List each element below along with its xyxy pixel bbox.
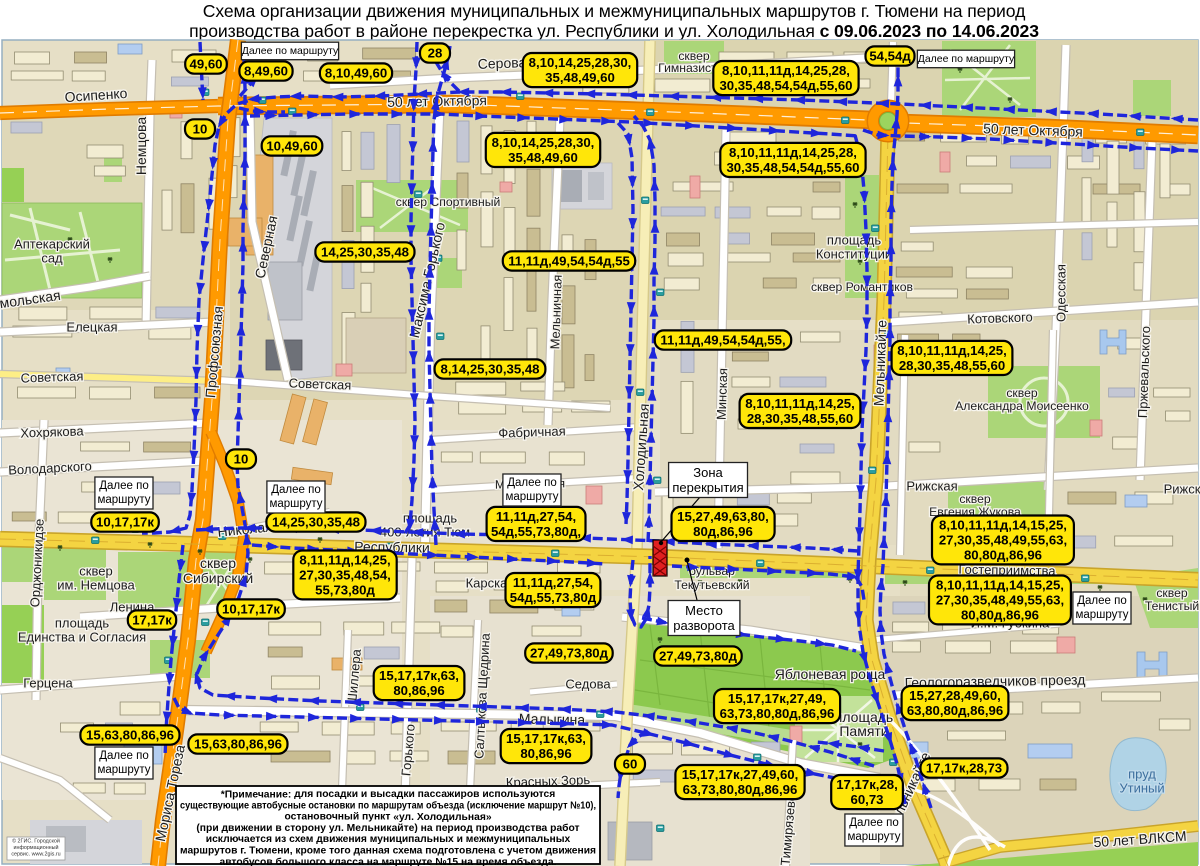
- svg-text:80,86,96: 80,86,96: [393, 683, 444, 698]
- svg-text:14,25,30,35,48: 14,25,30,35,48: [321, 245, 409, 260]
- svg-text:Пржевальского: Пржевальского: [1135, 326, 1153, 419]
- svg-text:Далее по: Далее по: [99, 480, 149, 492]
- svg-text:Рижск: Рижск: [1164, 482, 1200, 497]
- svg-text:11,11д,27,54,: 11,11д,27,54,: [496, 509, 576, 524]
- svg-text:Малыгина: Малыгина: [519, 710, 586, 727]
- svg-text:10,49,60: 10,49,60: [266, 139, 317, 154]
- svg-text:14,25,30,35,48: 14,25,30,35,48: [272, 515, 360, 530]
- svg-text:Одесская: Одесская: [1054, 264, 1069, 322]
- svg-text:8,10,11,11д,14,25,28,: 8,10,11,11д,14,25,28,: [722, 63, 850, 78]
- svg-text:Далее по: Далее по: [271, 484, 321, 496]
- svg-text:сад: сад: [41, 251, 63, 266]
- svg-text:Седова: Седова: [565, 677, 611, 692]
- svg-text:сквер: сквер: [79, 564, 112, 579]
- svg-text:15,17,17к,27,49,60,: 15,17,17к,27,49,60,: [682, 767, 799, 782]
- svg-text:10,17,17к: 10,17,17к: [222, 602, 280, 617]
- svg-text:55,73,80д: 55,73,80д: [315, 582, 375, 597]
- svg-text:перекрытия: перекрытия: [672, 480, 743, 495]
- svg-text:остановочный пункт «ул. Холоди: остановочный пункт «ул. Холодильная»: [284, 812, 491, 823]
- svg-text:63,80,80д,86,96: 63,80,80д,86,96: [907, 703, 1003, 718]
- svg-text:80,86,96: 80,86,96: [520, 746, 571, 761]
- svg-text:Зона: Зона: [693, 465, 723, 480]
- svg-text:маршруту: маршруту: [97, 764, 150, 776]
- svg-text:пруд: пруд: [1128, 767, 1156, 782]
- svg-text:Мельникайте: Мельникайте: [870, 319, 889, 406]
- svg-text:49,60: 49,60: [189, 57, 222, 72]
- svg-text:27,30,35,48,49,55,63,: 27,30,35,48,49,55,63,: [939, 533, 1067, 548]
- svg-text:разворота: разворота: [673, 618, 735, 633]
- svg-text:© 2ГИС. Городской: © 2ГИС. Городской: [12, 838, 60, 845]
- svg-text:Серова: Серова: [477, 54, 526, 72]
- svg-text:27,30,35,48,49,55,63,: 27,30,35,48,49,55,63,: [936, 593, 1064, 608]
- svg-text:Утиный: Утиный: [1119, 781, 1164, 796]
- svg-text:80,80д,86,96: 80,80д,86,96: [961, 607, 1039, 622]
- svg-text:54д,55,73,80д: 54д,55,73,80д: [510, 590, 597, 605]
- svg-text:8,14,25,30,35,48: 8,14,25,30,35,48: [441, 362, 540, 377]
- svg-text:27,30,35,48,54,: 27,30,35,48,54,: [299, 568, 391, 583]
- svg-text:Хохрякова: Хохрякова: [20, 423, 85, 440]
- svg-text:Тенистый: Тенистый: [1145, 599, 1199, 613]
- svg-text:11,11д,27,54,: 11,11д,27,54,: [513, 575, 593, 590]
- svg-text:28,30,35,48,55,60: 28,30,35,48,55,60: [747, 411, 853, 426]
- svg-text:8,10,11,11д,14,25,: 8,10,11,11д,14,25,: [897, 343, 1007, 358]
- svg-text:существующие автобусные остано: существующие автобусные остановки по мар…: [180, 799, 596, 811]
- svg-text:28,30,35,48,55,60: 28,30,35,48,55,60: [899, 358, 1005, 373]
- svg-text:Памяти: Памяти: [839, 723, 888, 739]
- svg-text:27,49,73,80д: 27,49,73,80д: [659, 649, 738, 664]
- svg-text:15,63,80,86,96: 15,63,80,86,96: [86, 728, 174, 743]
- svg-text:Далее по: Далее по: [507, 477, 557, 489]
- svg-text:Текутьевский: Текутьевский: [674, 578, 749, 592]
- svg-text:Советская: Советская: [288, 375, 351, 392]
- svg-text:30,35,48,54,54д,55,60: 30,35,48,54,54д,55,60: [726, 160, 859, 175]
- svg-text:10,17,17к: 10,17,17к: [96, 515, 154, 530]
- svg-text:63,73,80,80д,86,96: 63,73,80,80д,86,96: [683, 782, 798, 797]
- svg-text:Минская: Минская: [714, 368, 731, 421]
- svg-text:27,49,73,80д: 27,49,73,80д: [530, 646, 609, 661]
- svg-text:автобусов большого класса на м: автобусов большого класса на маршруте №1…: [220, 856, 557, 866]
- svg-text:Герцена: Герцена: [23, 676, 73, 691]
- svg-text:площадь: площадь: [55, 616, 110, 631]
- svg-text:площадь: площадь: [827, 233, 882, 248]
- svg-text:35,48,49,60: 35,48,49,60: [508, 150, 578, 165]
- svg-text:30,35,48,54,54д,55,60: 30,35,48,54,54д,55,60: [719, 78, 852, 93]
- svg-text:Далее по: Далее по: [99, 750, 149, 762]
- svg-text:11,11д,49,54,54д,55,: 11,11д,49,54,54д,55,: [660, 333, 785, 348]
- svg-text:8,11,11д,14,25,: 8,11,11д,14,25,: [299, 553, 390, 568]
- svg-text:15,17,17к,27,49,: 15,17,17к,27,49,: [728, 691, 826, 706]
- svg-text:8,10,11,11д,14,25,28,: 8,10,11,11д,14,25,28,: [729, 145, 857, 160]
- svg-text:Конституции: Конституции: [816, 247, 892, 262]
- svg-text:Далее по маршруту: Далее по маршруту: [242, 45, 339, 57]
- svg-text:им. Немцова: им. Немцова: [57, 578, 135, 593]
- svg-text:*Примечание: для посадки и выс: *Примечание: для посадки и высадки пасса…: [221, 789, 556, 800]
- svg-text:35,48,49,60: 35,48,49,60: [545, 70, 615, 85]
- svg-text:8,49,60: 8,49,60: [244, 64, 288, 79]
- svg-text:15,27,49,63,80,: 15,27,49,63,80,: [677, 509, 769, 524]
- svg-text:Александра Моисеенко: Александра Моисеенко: [955, 399, 1089, 413]
- svg-text:60,73: 60,73: [850, 792, 883, 807]
- svg-text:Мельничная: Мельничная: [547, 274, 565, 349]
- svg-text:Далее по: Далее по: [849, 817, 899, 829]
- svg-text:8,10,11,11д,14,15,25,: 8,10,11,11д,14,15,25,: [939, 518, 1067, 533]
- svg-text:80д,86,96: 80д,86,96: [693, 524, 753, 539]
- svg-text:8,10,14,25,28,30,: 8,10,14,25,28,30,: [529, 55, 632, 70]
- svg-text:60: 60: [623, 757, 638, 772]
- svg-text:Далее по: Далее по: [1077, 595, 1127, 607]
- svg-text:Котовского: Котовского: [967, 309, 1033, 326]
- svg-text:10: 10: [234, 452, 249, 467]
- svg-text:маршруту: маршруту: [269, 498, 322, 510]
- svg-text:8,10,14,25,28,30,: 8,10,14,25,28,30,: [492, 135, 595, 150]
- svg-text:Фабричная: Фабричная: [498, 423, 566, 440]
- svg-text:10: 10: [193, 122, 208, 137]
- svg-text:8,10,11,11д,14,15,25,: 8,10,11,11д,14,15,25,: [936, 578, 1064, 593]
- svg-text:28: 28: [428, 46, 443, 61]
- svg-text:сервис. www.2gis.ru: сервис. www.2gis.ru: [11, 852, 60, 858]
- svg-text:Далее по маршруту: Далее по маршруту: [918, 53, 1015, 65]
- svg-text:информационный: информационный: [13, 844, 58, 851]
- svg-text:Аптекарский: Аптекарский: [14, 237, 90, 252]
- svg-text:80,80д,86,96: 80,80д,86,96: [964, 547, 1042, 562]
- svg-text:11,11д,49,54,54д,55: 11,11д,49,54,54д,55: [508, 254, 630, 269]
- svg-text:8,10,49,60: 8,10,49,60: [325, 66, 387, 81]
- svg-text:Рижская: Рижская: [906, 479, 957, 494]
- svg-text:маршрутов г. Тюмени, кроме тог: маршрутов г. Тюмени, кроме того данная с…: [180, 846, 596, 857]
- svg-text:Место: Место: [685, 603, 723, 618]
- svg-text:63,73,80,80д,86,96: 63,73,80,80д,86,96: [720, 706, 835, 721]
- svg-text:15,63,80,86,96: 15,63,80,86,96: [194, 737, 282, 752]
- svg-text:сквер: сквер: [200, 555, 236, 571]
- svg-text:17,17к: 17,17к: [132, 613, 172, 628]
- svg-text:15,17,17к,63,: 15,17,17к,63,: [379, 668, 459, 683]
- svg-text:Елецкая: Елецкая: [66, 320, 117, 335]
- svg-text:сквер Романтиков: сквер Романтиков: [811, 280, 913, 294]
- svg-text:(при движении в сторону ул. Ме: (при движении в сторону ул. Мельникайте)…: [196, 822, 579, 834]
- svg-text:54д,55,73,80д,: 54д,55,73,80д,: [491, 524, 581, 539]
- svg-text:Немцова: Немцова: [133, 117, 149, 175]
- svg-text:54,54д: 54,54д: [869, 49, 911, 64]
- svg-text:Единства и Согласия: Единства и Согласия: [18, 630, 146, 645]
- svg-text:маршруту: маршруту: [97, 494, 150, 506]
- svg-text:17,17к,28,73: 17,17к,28,73: [926, 761, 1002, 776]
- svg-text:8,10,11,11д,14,25,: 8,10,11,11д,14,25,: [745, 396, 855, 411]
- svg-text:сквер: сквер: [1006, 386, 1038, 400]
- svg-text:маршруту: маршруту: [505, 491, 558, 503]
- svg-text:маршруту: маршруту: [1075, 609, 1128, 621]
- svg-text:Советская: Советская: [20, 368, 83, 385]
- svg-text:15,27,28,49,60,: 15,27,28,49,60,: [909, 688, 1001, 703]
- svg-text:маршруту: маршруту: [847, 831, 900, 843]
- svg-text:исключается из схем движения м: исключается из схем движения муниципальн…: [206, 834, 571, 845]
- svg-text:сквер: сквер: [959, 492, 991, 506]
- svg-text:17,17к,28,: 17,17к,28,: [836, 777, 898, 792]
- svg-text:сквер: сквер: [1156, 586, 1188, 600]
- svg-text:15,17,17к,63,: 15,17,17к,63,: [506, 731, 586, 746]
